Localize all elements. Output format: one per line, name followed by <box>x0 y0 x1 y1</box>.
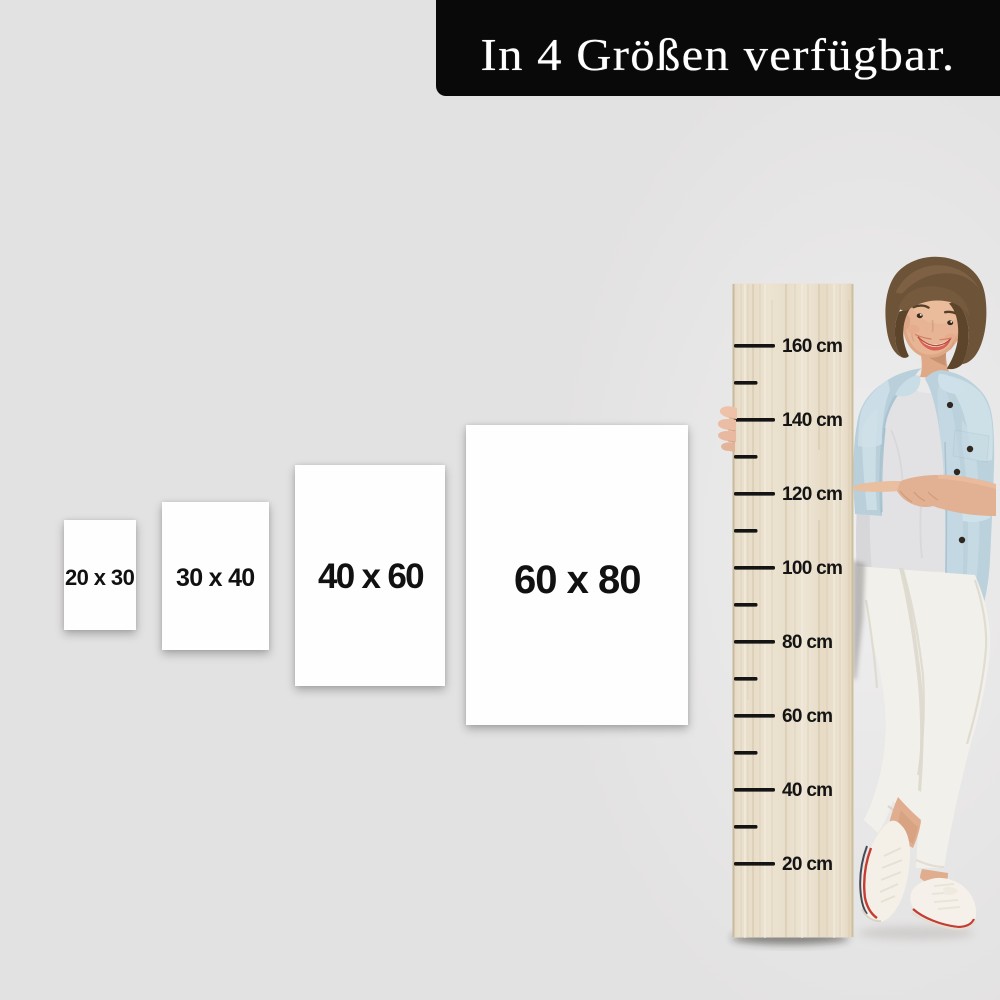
svg-text:40 cm: 40 cm <box>782 780 832 801</box>
svg-text:60 cm: 60 cm <box>782 706 832 727</box>
svg-text:140 cm: 140 cm <box>782 410 842 431</box>
svg-text:120 cm: 120 cm <box>782 484 842 505</box>
svg-text:160 cm: 160 cm <box>782 336 842 357</box>
svg-text:100 cm: 100 cm <box>782 558 842 579</box>
svg-text:20 cm: 20 cm <box>782 854 832 875</box>
svg-text:80 cm: 80 cm <box>782 632 832 653</box>
